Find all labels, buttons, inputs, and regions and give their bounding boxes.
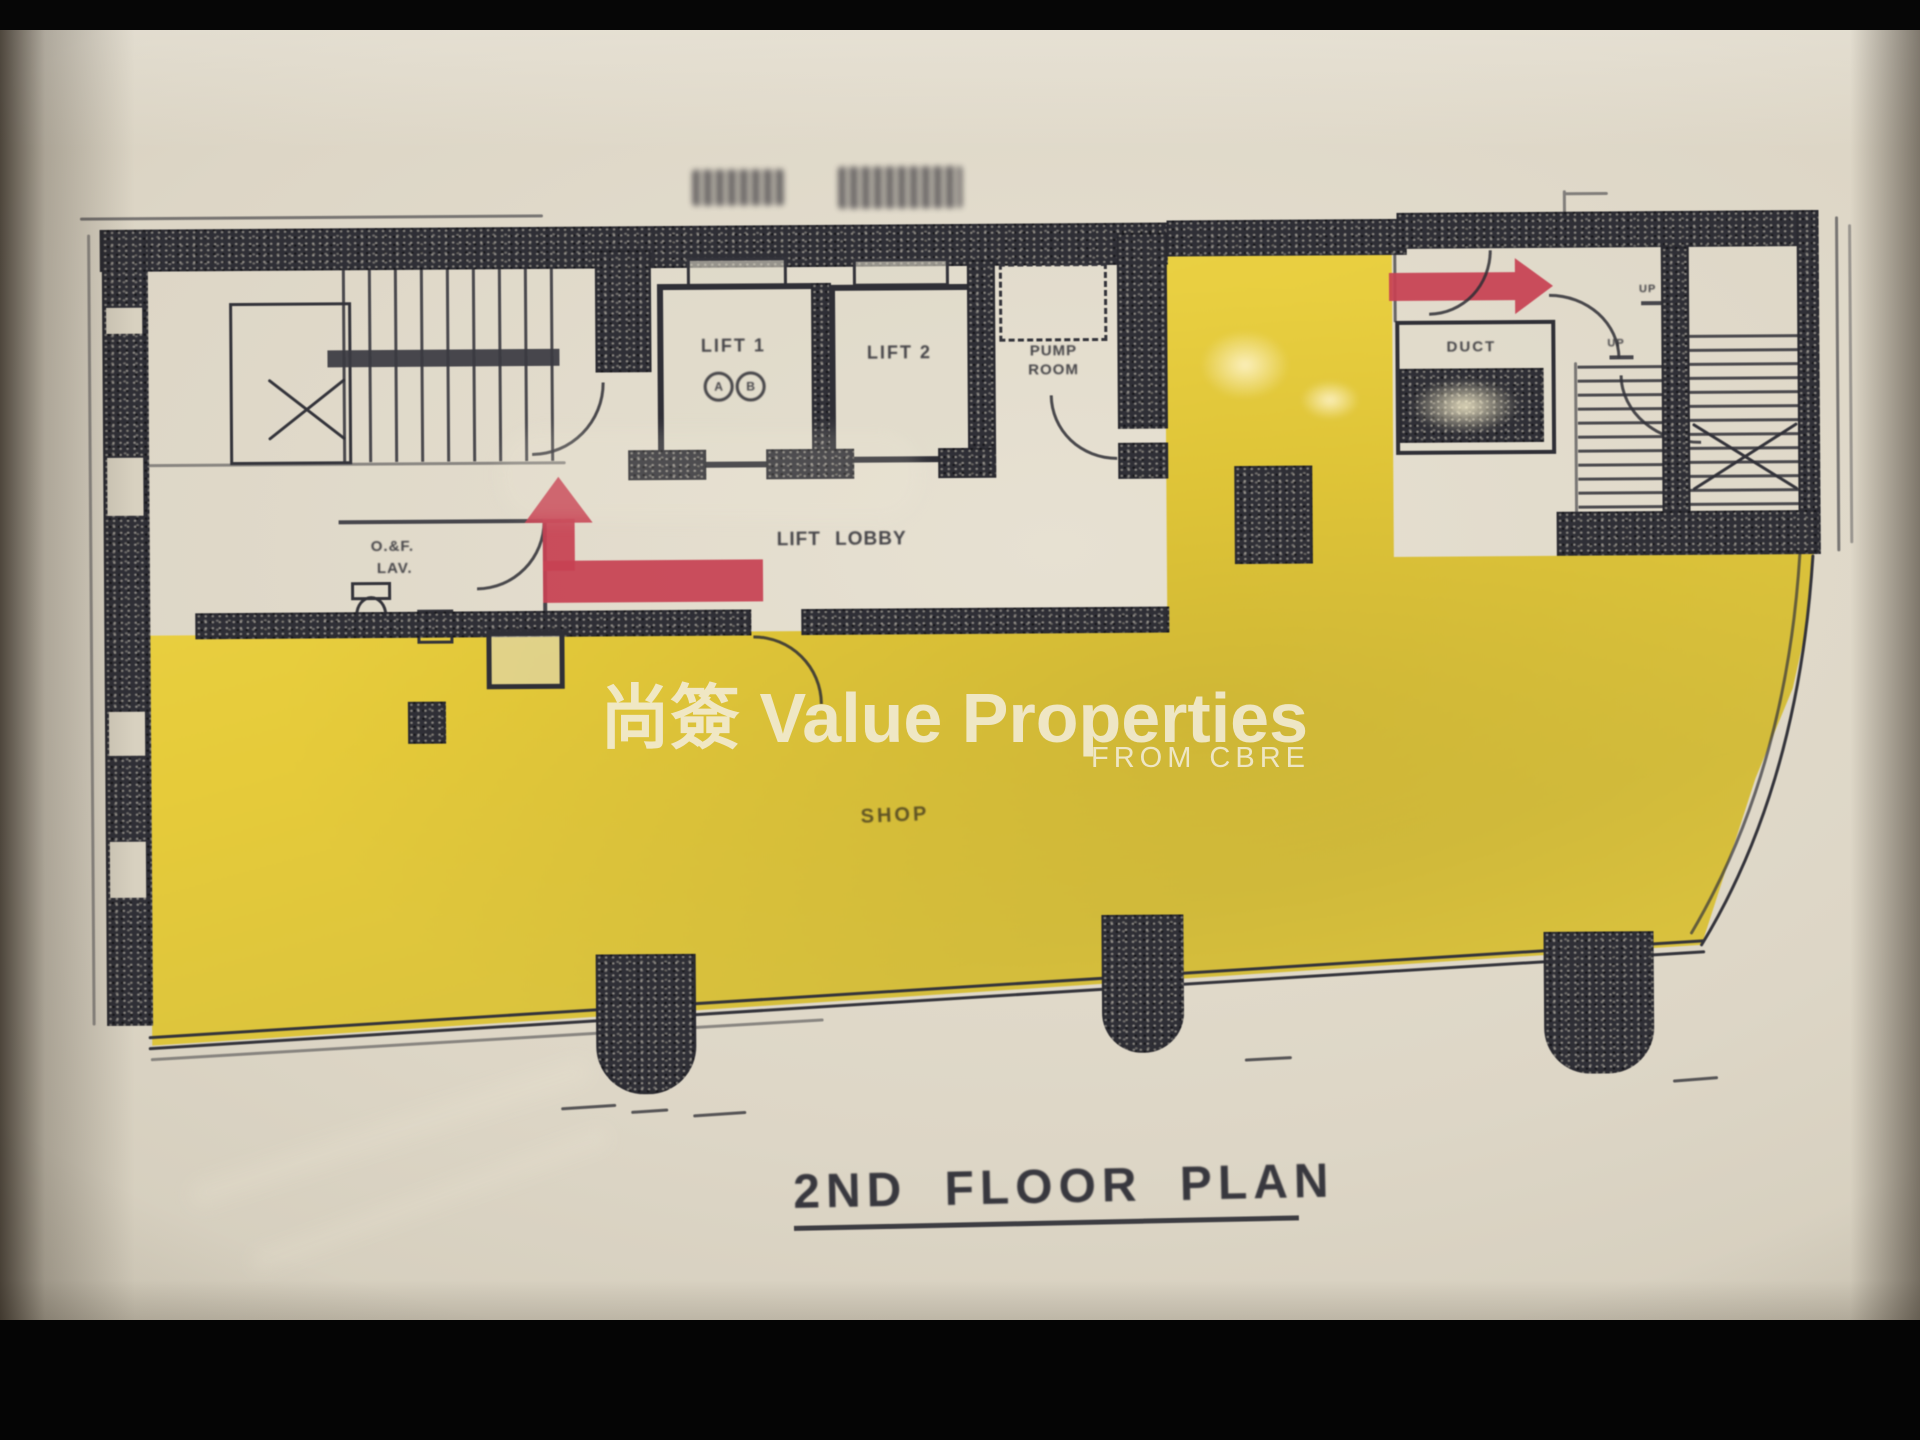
stamp-smudge-2 [838,166,962,209]
floor-plan-photo: LIFT 1 A B LIFT 2 PUMP ROOM [0,0,1920,1440]
right-arrow-head-icon [1515,258,1553,314]
right-stair-treads-right [1689,334,1802,517]
lift-2-door [853,258,949,287]
lav-label-line2: LAV. [377,560,413,577]
lobby-corner-column [486,631,564,690]
lobby-pier-3 [938,448,996,478]
glare-spot-1 [1200,330,1290,400]
pump-room-label: PUMP ROOM [1001,341,1105,380]
pump-room-label-line2: ROOM [1028,361,1079,378]
facade-pillar-middle [1101,914,1184,1053]
stamp-smudge-1 [692,169,784,206]
lobby-right-pier [1118,443,1168,479]
facade-dashes [562,1055,1716,1117]
lobby-right-wall [1117,233,1168,429]
left-outer-wall [102,230,154,1026]
photo-paper-background: LIFT 1 A B LIFT 2 PUMP ROOM [0,0,1920,1440]
duct-label: DUCT [1397,338,1545,356]
left-wall-window-3 [109,712,145,756]
facade-pillar-right [1543,931,1654,1074]
shop-label: SHOP [860,803,930,829]
left-wall-window-1 [106,308,142,334]
core-corner-wall-block [1234,466,1313,565]
up-label-1: UP [1639,283,1656,295]
left-outer-line [89,236,95,1024]
left-stair-landing [327,349,559,368]
lift-1-badge-a: A [704,372,734,402]
letterbox-top [0,0,1920,30]
lobby-bottom-wall-left [195,609,751,639]
right-outer-line-2 [1850,226,1852,542]
right-stair-divider [1661,247,1691,515]
up-label-2: UP [1607,337,1624,349]
up-arrow-base-icon [543,559,763,603]
top-wall-middle [1167,219,1407,257]
plan-title: 2ND FLOOR PLAN [793,1154,1335,1220]
glare-spot-3 [1410,378,1520,434]
top-right-notch [1564,191,1606,213]
right-core-bottom-wall [1557,510,1819,556]
lav-label-line1: O.&F. [371,538,414,555]
shopfront-line-2 [150,952,1705,1049]
lift-2-label: LIFT 2 [833,342,965,364]
right-outer-wall [1796,210,1820,554]
top-outer-line [81,216,541,219]
right-stair-edge-line [1576,364,1577,516]
facade-pillar-left [596,954,697,1095]
corridor-wall [595,250,652,372]
shopfront-line-3 [152,1020,822,1060]
pump-room-hatch [999,263,1108,342]
shop-column-small [408,702,446,744]
lift-1-label: LIFT 1 [665,335,801,357]
lift-1-badge-b: B [736,371,766,401]
left-wall-window-4 [110,842,146,898]
pump-room-label-line1: PUMP [1030,342,1077,359]
plan-title-block: 2ND FLOOR PLAN [793,1154,1336,1231]
watermark-brand-cjk: 尚簽 [600,679,740,757]
top-wall-right [1396,210,1816,249]
glare-sheen-1 [500,430,920,520]
glare-spot-2 [1300,380,1360,420]
shopfront-line-1 [150,941,1705,1038]
lobby-bottom-wall-right [801,607,1169,636]
left-stair-well [229,302,352,465]
right-stair-treads-left [1578,365,1663,516]
lift-lobby-label: LIFT LOBBY [777,528,907,551]
pump-room-left-wall [967,260,996,460]
watermark-subtitle: FROM CBRE [1040,742,1310,775]
left-wall-window-2 [107,458,143,516]
right-outer-line-1 [1837,218,1839,550]
letterbox-bottom [0,1320,1920,1440]
up-tick-2 [1609,355,1633,359]
